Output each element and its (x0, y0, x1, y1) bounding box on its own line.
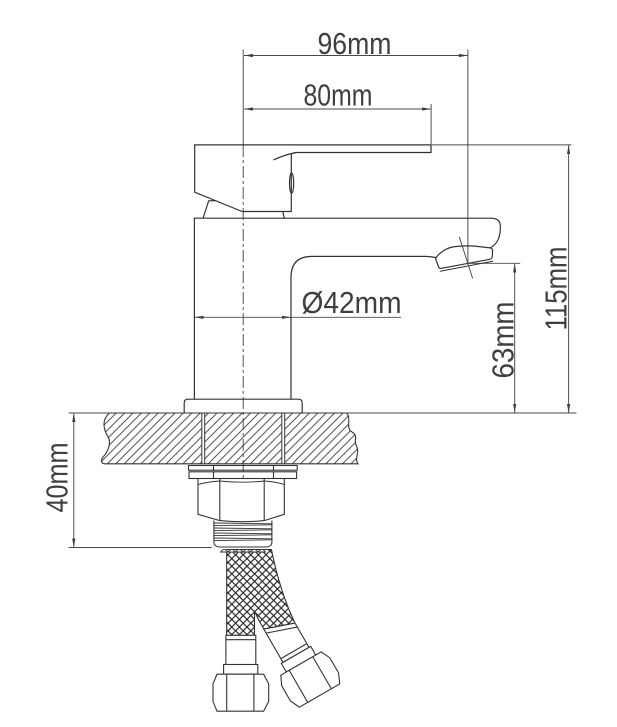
svg-text:63mm: 63mm (486, 302, 521, 379)
svg-text:115mm: 115mm (539, 247, 574, 331)
svg-text:80mm: 80mm (304, 78, 373, 113)
svg-text:40mm: 40mm (40, 443, 75, 513)
svg-text:96mm: 96mm (318, 26, 392, 61)
svg-text:Ø42mm: Ø42mm (302, 285, 402, 320)
